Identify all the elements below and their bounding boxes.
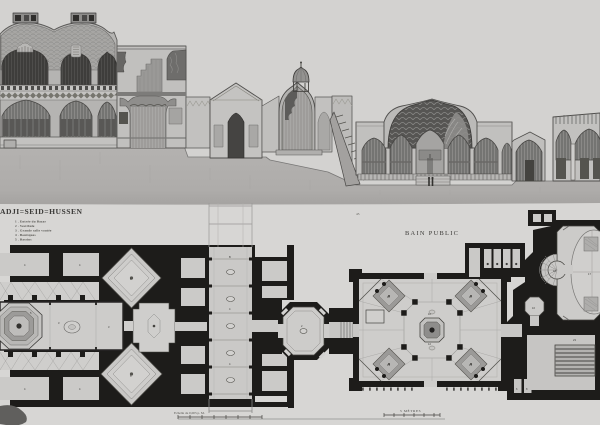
- svg-text:5 . Bassins: 5 . Bassins: [15, 238, 32, 242]
- svg-text:ADJI=SEID=HUSSEN: ADJI=SEID=HUSSEN: [0, 207, 83, 216]
- svg-text:3 . Grande salle voutée: 3 . Grande salle voutée: [15, 229, 52, 233]
- svg-text:2 . Vestibule: 2 . Vestibule: [15, 224, 35, 228]
- svg-text:5 MÈTRES: 5 MÈTRES: [400, 408, 421, 413]
- svg-text:B: B: [229, 255, 231, 259]
- svg-text:BAIN PUBLIC: BAIN PUBLIC: [405, 230, 459, 237]
- svg-text:45: 45: [356, 212, 360, 216]
- svg-text:4 . Boutiques: 4 . Boutiques: [15, 233, 36, 237]
- svg-text:1 . Entrée du Bazar: 1 . Entrée du Bazar: [15, 220, 47, 224]
